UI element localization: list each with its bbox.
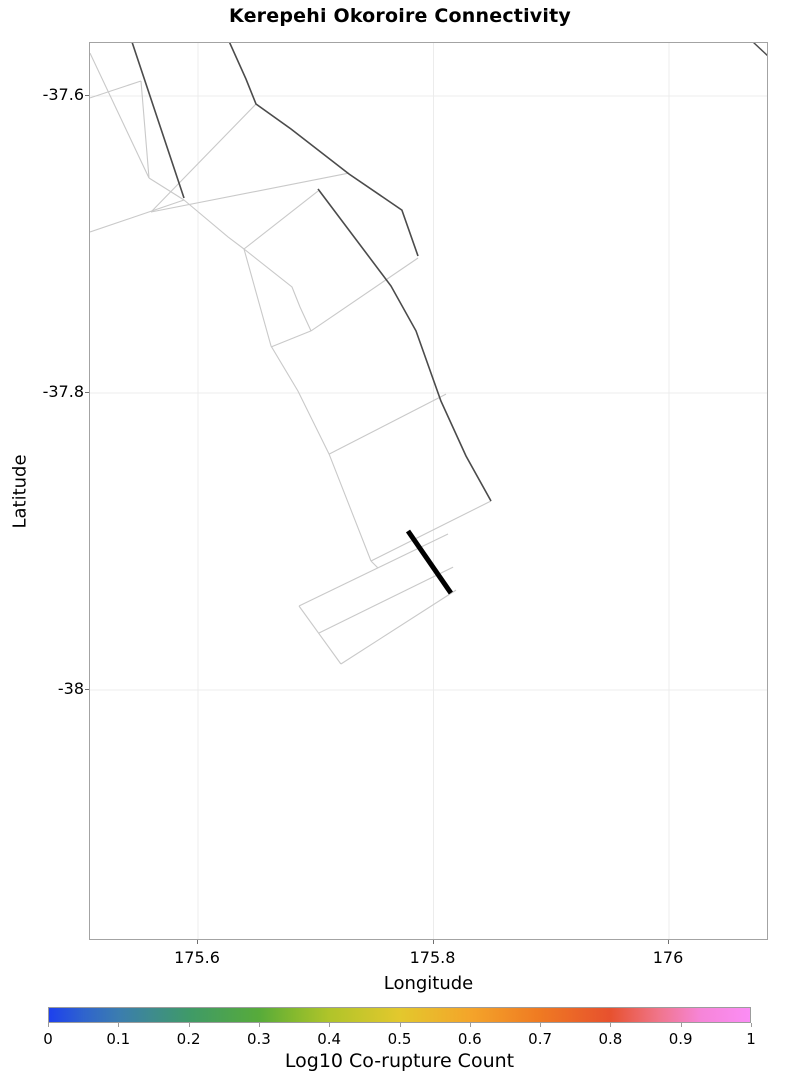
colorbar-tick-label: 0 [18,1030,78,1048]
x-tick-mark [668,940,669,944]
colorbar-tick-label: 0.3 [229,1030,289,1048]
fault-trace-dark-trace-3 [318,189,491,501]
colorbar-tick-mark [118,1023,119,1027]
fault-trace-trace-l5b [90,200,184,232]
x-tick-label: 175.8 [393,950,473,966]
colorbar-tick-mark [470,1023,471,1027]
colorbar-tick-label: 0.8 [580,1030,640,1048]
fault-trace-trace-l14 [371,501,491,561]
colorbar-tick-mark [259,1023,260,1027]
fault-trace-trace-rect-top [299,534,448,606]
y-tick-mark [85,95,89,96]
colorbar-tick-mark [329,1023,330,1027]
colorbar-tick-label: 1 [721,1030,781,1048]
colorbar-tick-mark [540,1023,541,1027]
fault-trace-trace-l7 [329,394,446,454]
y-tick-mark [85,689,89,690]
fault-trace-trace-l15 [371,561,378,568]
fault-trace-trace-l2 [90,81,141,98]
fault-trace-trace-l10 [311,258,418,331]
y-tick-mark [85,392,89,393]
fault-trace-dark-trace-1 [131,43,184,198]
fault-trace-trace-l12 [151,173,349,212]
y-tick-label: -37.6 [14,87,84,103]
colorbar-tick-mark [189,1023,190,1027]
colorbar-tick-label: 0.9 [651,1030,711,1048]
colorbar-tick-label: 0.6 [440,1030,500,1048]
fault-trace-trace-rect-left [299,606,341,664]
colorbar-tick-mark [610,1023,611,1027]
colorbar-tick-mark [400,1023,401,1027]
fault-trace-trace-rect-mid [319,567,453,633]
fault-trace-trace-l4 [151,104,256,212]
colorbar-tick-label: 0.1 [88,1030,148,1048]
colorbar-label: Log10 Co-rupture Count [48,1050,751,1072]
y-axis-label: Latitude [10,292,31,692]
x-tick-label: 175.6 [157,950,237,966]
colorbar [48,1007,751,1023]
fault-trace-trace-l9 [244,249,311,331]
colorbar-gradient [49,1008,750,1022]
colorbar-tick-mark [48,1023,49,1027]
fault-trace-dark-trace-2 [228,43,418,256]
fault-trace-trace-rect-bottom [341,590,456,664]
x-tick-mark [433,940,434,944]
figure-root: Kerepehi Okoroire Connectivity 175.6175.… [0,0,800,1087]
fault-map-canvas [90,43,768,940]
x-axis-label: Longitude [89,973,768,994]
colorbar-tick-label: 0.7 [510,1030,570,1048]
colorbar-tick-label: 0.4 [299,1030,359,1048]
fault-trace-highlight-segment [408,531,451,593]
colorbar-tick-mark [751,1023,752,1027]
colorbar-tick-label: 0.2 [159,1030,219,1048]
colorbar-tick-label: 0.5 [370,1030,430,1048]
fault-trace-trace-l6-snake [184,200,371,561]
fault-trace-dark-trace-corner [753,43,768,57]
plot-area [89,42,768,940]
x-tick-label: 176 [628,950,708,966]
fault-trace-trace-l11 [271,331,311,347]
colorbar-tick-mark [681,1023,682,1027]
x-tick-mark [197,940,198,944]
chart-title: Kerepehi Okoroire Connectivity [0,5,800,27]
fault-trace-trace-l8 [244,191,318,249]
fault-trace-trace-l1 [90,53,149,178]
